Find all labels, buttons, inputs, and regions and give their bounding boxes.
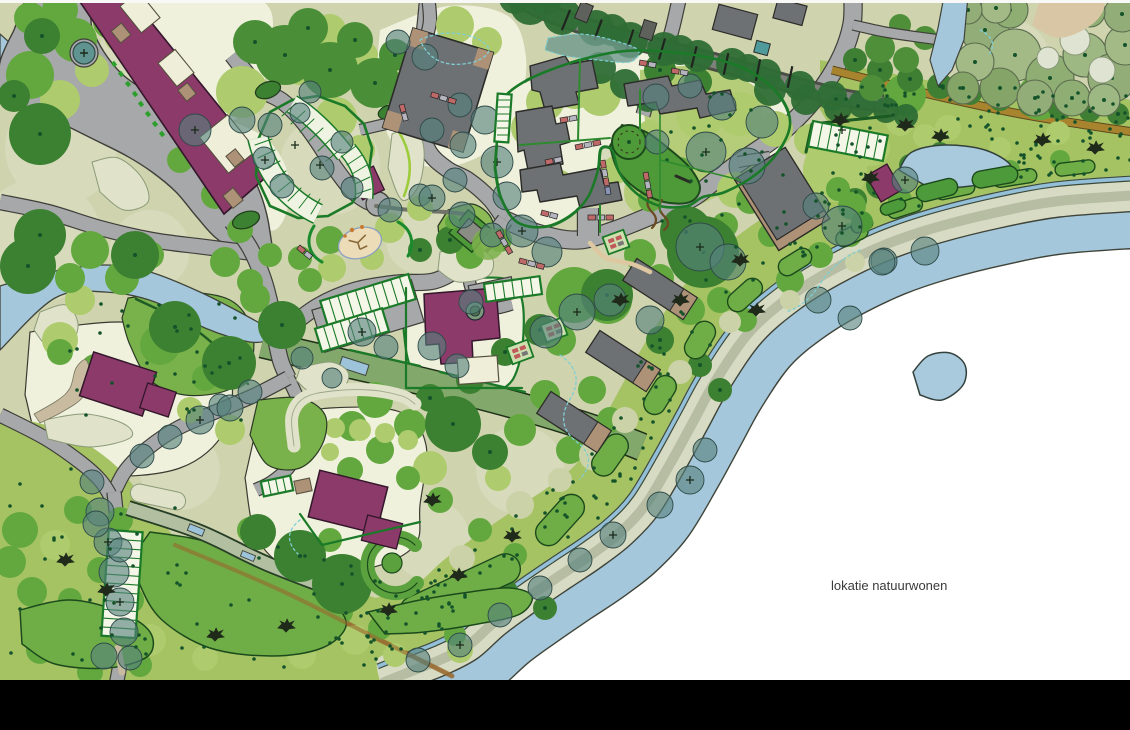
svg-text:lokatie natuurwonen: lokatie natuurwonen <box>831 578 947 593</box>
